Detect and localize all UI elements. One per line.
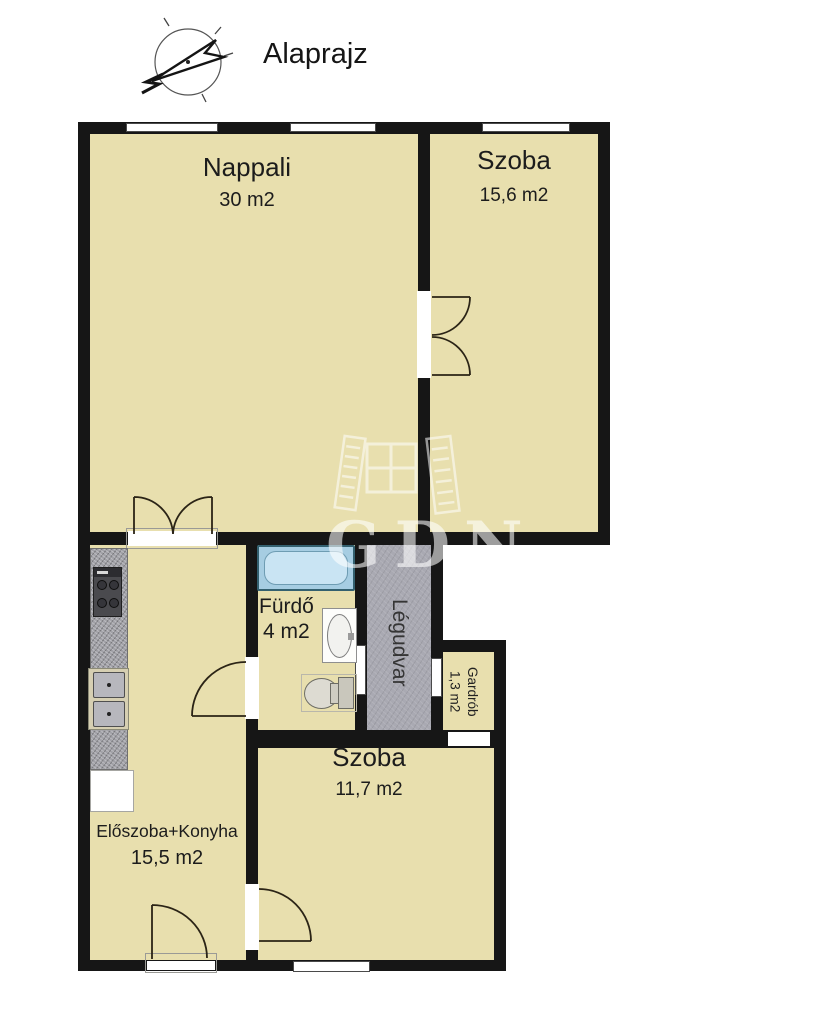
wall-bottom — [78, 960, 506, 971]
label-legudvar: Légudvar — [387, 573, 411, 713]
label-nappali-area: 30 m2 — [147, 189, 347, 212]
gas-stove-icon — [93, 567, 122, 617]
label-szoba-also-name: Szoba — [269, 743, 469, 773]
washbasin-icon — [322, 608, 357, 663]
door-gap-eloszoba-furdo — [245, 657, 259, 719]
compass-icon — [138, 16, 238, 111]
kitchen-sink-icon — [88, 668, 129, 730]
label-szoba-also-area: 11,7 m2 — [269, 779, 469, 801]
bathtub-icon — [257, 545, 355, 591]
stove-control-band — [94, 568, 121, 577]
window-nappali-2 — [290, 123, 376, 132]
window-szoba-also — [293, 961, 370, 972]
label-szoba-felso-area: 15,6 m2 — [414, 185, 614, 207]
toilet-icon — [301, 674, 357, 712]
label-eloszoba-name: Előszoba+Konyha — [67, 821, 267, 841]
window-legudvar-gardrob — [431, 658, 442, 697]
window-nappali-1 — [126, 123, 218, 132]
label-nappali-name: Nappali — [147, 153, 347, 183]
label-gardrob-area: 1,3 m2 — [446, 654, 464, 730]
label-furdo-area: 4 m2 — [263, 620, 310, 644]
floor-plan-page: Alaprajz — [0, 0, 818, 1024]
kitchen-cabinet — [90, 770, 134, 812]
page-title: Alaprajz — [263, 38, 368, 71]
door-gap-entry — [147, 961, 215, 970]
label-eloszoba-area: 15,5 m2 — [67, 847, 267, 870]
label-furdo-name: Fürdő — [259, 595, 314, 619]
door-gap-eloszoba-szoba — [245, 884, 259, 950]
label-gardrob-name: Gardrób — [464, 654, 482, 730]
window-szoba-felso — [482, 123, 570, 132]
label-szoba-felso-name: Szoba — [414, 146, 614, 176]
wall-left — [78, 122, 90, 971]
door-gap-nappali-szoba — [417, 291, 431, 378]
wall-right-lower — [494, 640, 506, 971]
label-gardrob: Gardrób 1,3 m2 — [446, 654, 481, 730]
door-gap-nappali-eloszoba — [128, 531, 216, 546]
